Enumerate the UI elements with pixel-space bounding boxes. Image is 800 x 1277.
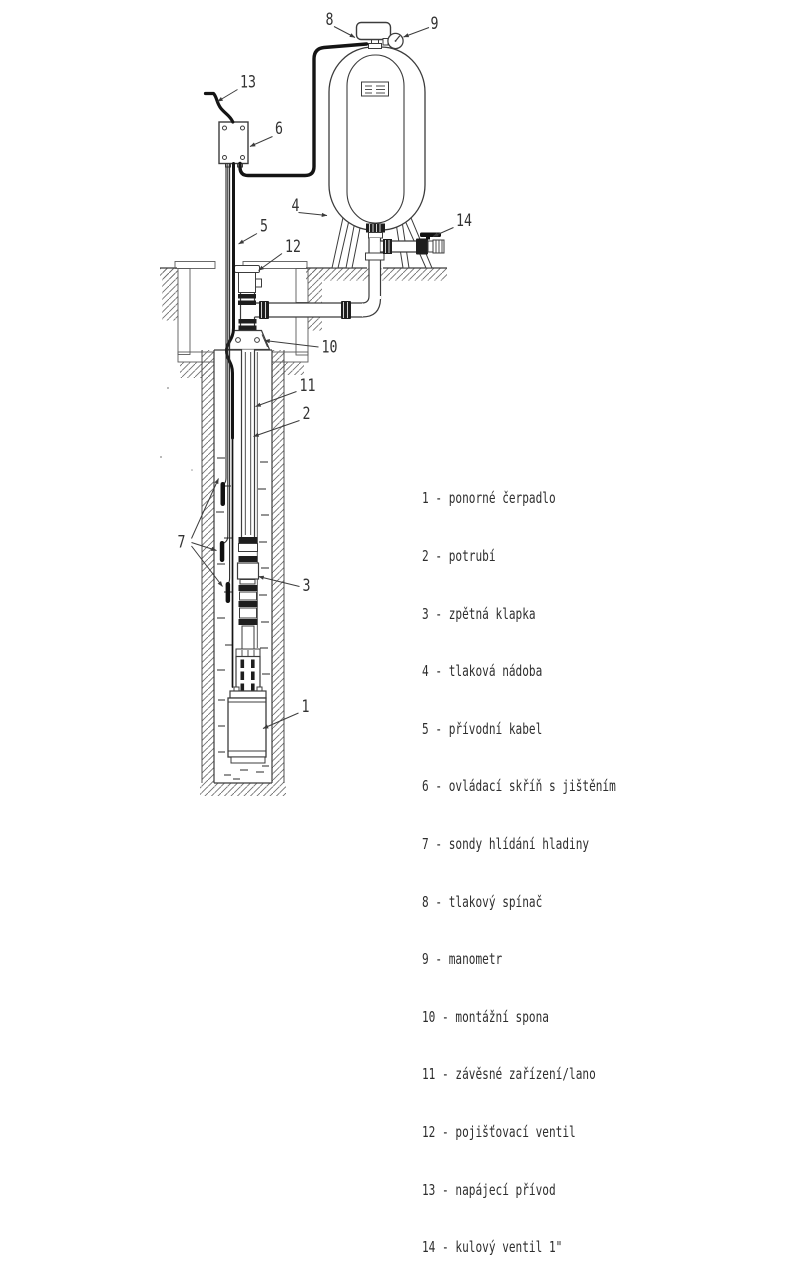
pipe-union: [366, 253, 385, 260]
check-valve-assembly: [238, 537, 259, 625]
callout-probes: 7: [178, 532, 186, 552]
ball-valve: [416, 233, 444, 255]
control-box: [219, 122, 248, 167]
pipe-coupling: [341, 301, 351, 319]
diagram-canvas: 8 9 13 6 4 14 5 12 10 11 2 7 3 1: [0, 0, 800, 800]
legend-item: 13 - napájecí přívod: [422, 1181, 616, 1200]
legend-item: 14 - kulový ventil 1": [422, 1238, 616, 1257]
legend-item: 6 - ovládací skříň s jištěním: [422, 777, 616, 796]
legend-item: 5 - přívodní kabel: [422, 720, 616, 739]
legend-item: 9 - manometr: [422, 950, 616, 969]
legend-item: 1 - ponorné čerpadlo: [422, 489, 616, 508]
callout-rope: 11: [300, 375, 316, 395]
pump-bottom-cap: [231, 757, 265, 763]
legend-item: 7 - sondy hlídání hladiny: [422, 835, 616, 854]
level-probe: [226, 582, 231, 603]
callout-safety-valve: 12: [285, 236, 301, 256]
legend-item: 12 - pojišťovací ventil: [422, 1123, 616, 1142]
callout-power-feed: 13: [240, 72, 256, 92]
tank-label-plate: [362, 82, 389, 96]
probe-wire: [224, 164, 226, 485]
legend: 1 - ponorné čerpadlo 2 - potrubí 3 - zpě…: [422, 451, 616, 1277]
legend-item: 3 - zpětná klapka: [422, 605, 616, 624]
callout-control-box: 6: [275, 118, 283, 138]
level-probe: [221, 482, 226, 506]
pit-slab-left: [175, 262, 215, 269]
technical-diagram: 8 9 13 6 4 14 5 12 10 11 2 7 3 1 1 - pon…: [0, 0, 800, 800]
pressure-switch: [357, 23, 391, 40]
pit-wall-left: [178, 269, 190, 355]
callout-ball-valve: 14: [456, 210, 472, 230]
legend-item: 11 - závěsné zařízení/lano: [422, 1065, 616, 1084]
pump-body: [228, 698, 266, 757]
tank-inner-membrane: [347, 55, 404, 223]
pump-intake-section: [236, 657, 260, 692]
callout-pipe: 2: [303, 403, 311, 423]
callout-supply-cable: 5: [260, 216, 268, 236]
legend-item: 2 - potrubí: [422, 547, 616, 566]
stem-flange: [369, 44, 382, 49]
legend-item: 10 - montážní spona: [422, 1008, 616, 1027]
callout-pump: 1: [302, 696, 310, 716]
legend-item: 4 - tlaková nádoba: [422, 662, 616, 681]
pump-top-plate: [230, 691, 266, 698]
callout-clamp: 10: [322, 337, 338, 357]
callout-check-valve: 3: [303, 575, 311, 595]
callout-manometer: 9: [431, 13, 439, 33]
legend-item: 8 - tlakový spínač: [422, 893, 616, 912]
pipe-coupling: [259, 301, 269, 319]
callout-pressure-switch: 8: [326, 9, 334, 29]
callout-tank: 4: [292, 195, 300, 215]
power-feed-cable: [206, 94, 233, 123]
submersible-pump: [228, 626, 266, 763]
tank-bottom-fitting: [366, 224, 385, 239]
pit-wall-right-lower: [296, 317, 308, 355]
level-probe: [220, 541, 225, 562]
